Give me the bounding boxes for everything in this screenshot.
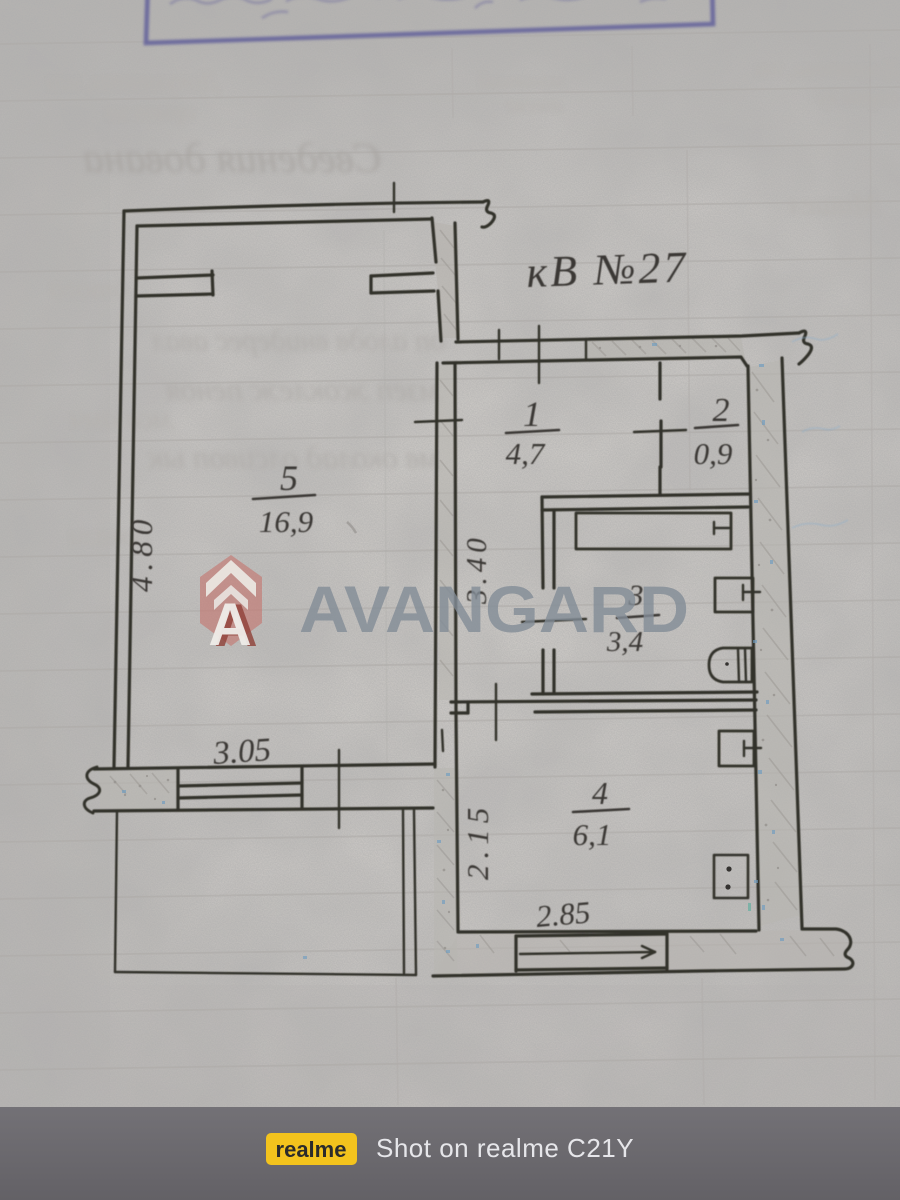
svg-text:мзеп жоклеж пеноя: мзеп жоклеж пеноя — [166, 371, 441, 407]
svg-text:ачесва: ачесва — [507, 95, 562, 117]
svg-text:realme: realme — [276, 1137, 347, 1162]
svg-text:манивший: манивший — [479, 71, 566, 93]
svg-text:Документи, ши: Документи, ши — [47, 67, 221, 96]
svg-text:ормоо из: ормоо из — [106, 100, 195, 126]
svg-text:Shot on realme C21Y: Shot on realme C21Y — [376, 1133, 634, 1163]
svg-text:4,7: 4,7 — [506, 436, 546, 471]
svg-text:Сведения дована: Сведения дована — [83, 136, 382, 182]
svg-text:A: A — [208, 591, 251, 658]
svg-text:Документи, ши: Документи, ши — [755, 56, 900, 81]
svg-text:2.15: 2.15 — [460, 802, 495, 880]
svg-text:оправ ку: оправ ку — [817, 84, 896, 109]
svg-text:16,9: 16,9 — [259, 504, 313, 539]
svg-text:5: 5 — [280, 458, 298, 498]
svg-text:4: 4 — [592, 775, 608, 811]
svg-text:6,1: 6,1 — [573, 817, 612, 852]
svg-text:Мишел: Мишел — [790, 188, 879, 221]
svg-text:2: 2 — [713, 392, 730, 429]
svg-text:оп алодв внидерес авал: оп алодв внидерес авал — [152, 324, 445, 357]
svg-text:кВ №27: кВ №27 — [526, 242, 690, 297]
svg-text:2.85: 2.85 — [535, 894, 592, 934]
svg-text:1: 1 — [523, 394, 541, 434]
svg-text:4.80: 4.80 — [124, 514, 159, 592]
svg-text:AVANGARD: AVANGARD — [299, 573, 689, 646]
svg-text:3.05: 3.05 — [211, 732, 272, 772]
svg-text:отого: отого — [50, 272, 128, 305]
svg-text:0,9: 0,9 — [694, 436, 733, 471]
